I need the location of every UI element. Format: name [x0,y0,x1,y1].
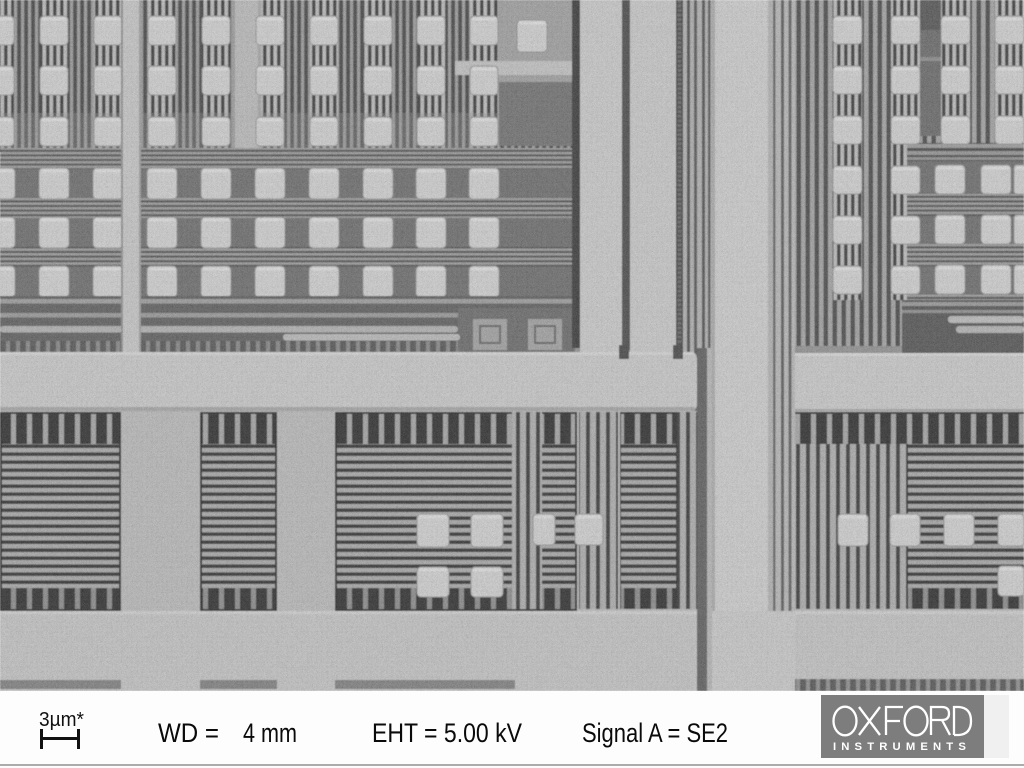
svg-text:INSTRUMENTS: INSTRUMENTS [833,741,971,753]
svg-text:WD =: WD = [158,718,219,748]
svg-text:Signal A = SE2: Signal A = SE2 [582,718,728,748]
svg-text:EHT = 5.00 kV: EHT = 5.00 kV [372,718,522,748]
svg-text:3µm*: 3µm* [39,709,84,731]
svg-text:4 mm: 4 mm [243,718,297,748]
